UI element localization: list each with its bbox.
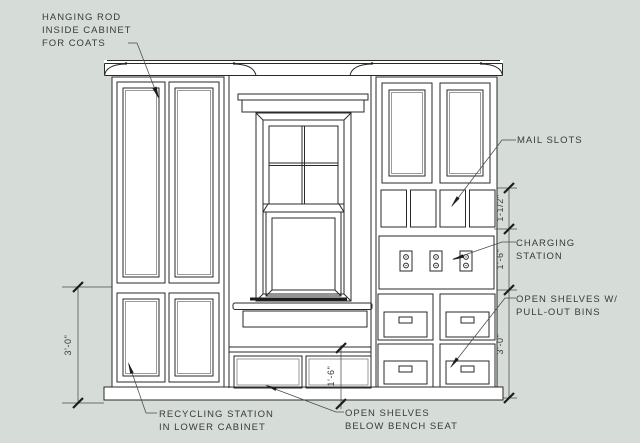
annotation-text: BELOW BENCH SEAT — [345, 421, 458, 432]
annotation-text: INSIDE CABINET — [42, 25, 132, 36]
annotation-text: OPEN SHELVES W/ — [516, 294, 618, 305]
elevation-paper — [104, 60, 503, 400]
crown-joint-dot — [125, 62, 127, 64]
crown-joint-dot — [371, 62, 373, 64]
dimension-text-left-height: 3'-0" — [63, 335, 73, 356]
outlet-dot — [435, 265, 436, 266]
outlet-dot — [465, 256, 466, 257]
annotation-text: IN LOWER CABINET — [159, 422, 266, 433]
annotation-text: MAIL SLOTS — [517, 135, 583, 146]
crown-joint-dot — [233, 62, 235, 64]
outlet-dot — [435, 256, 436, 257]
crown-joint-dot — [480, 62, 482, 64]
outlet-dot — [405, 256, 406, 257]
dimension-text-bench-height: 1'-6" — [326, 366, 336, 387]
dimension-text-right-lower: 3'-0" — [495, 334, 505, 355]
annotation-text: RECYCLING STATION — [159, 409, 274, 420]
sash-shadow-band — [250, 298, 347, 301]
outlet-dot — [465, 265, 466, 266]
annotation-text: OPEN SHELVES — [345, 408, 430, 419]
annotation-text: CHARGING — [516, 238, 575, 249]
dimension-text-slot-row: 1-1/2" — [495, 194, 505, 221]
outlet-dot — [405, 265, 406, 266]
annotation-text: HANGING ROD — [42, 12, 121, 23]
mudroom-elevation-drawing: 3'-0" 1'-6" 1-1/2" 1'-6" 3'-0" HANGING R… — [0, 0, 640, 443]
annotation-text: PULL-OUT BINS — [516, 307, 601, 318]
annotation-text: STATION — [516, 251, 563, 262]
annotation-text: FOR COATS — [42, 38, 106, 49]
dimension-text-charging-row: 1'-6" — [495, 249, 505, 270]
